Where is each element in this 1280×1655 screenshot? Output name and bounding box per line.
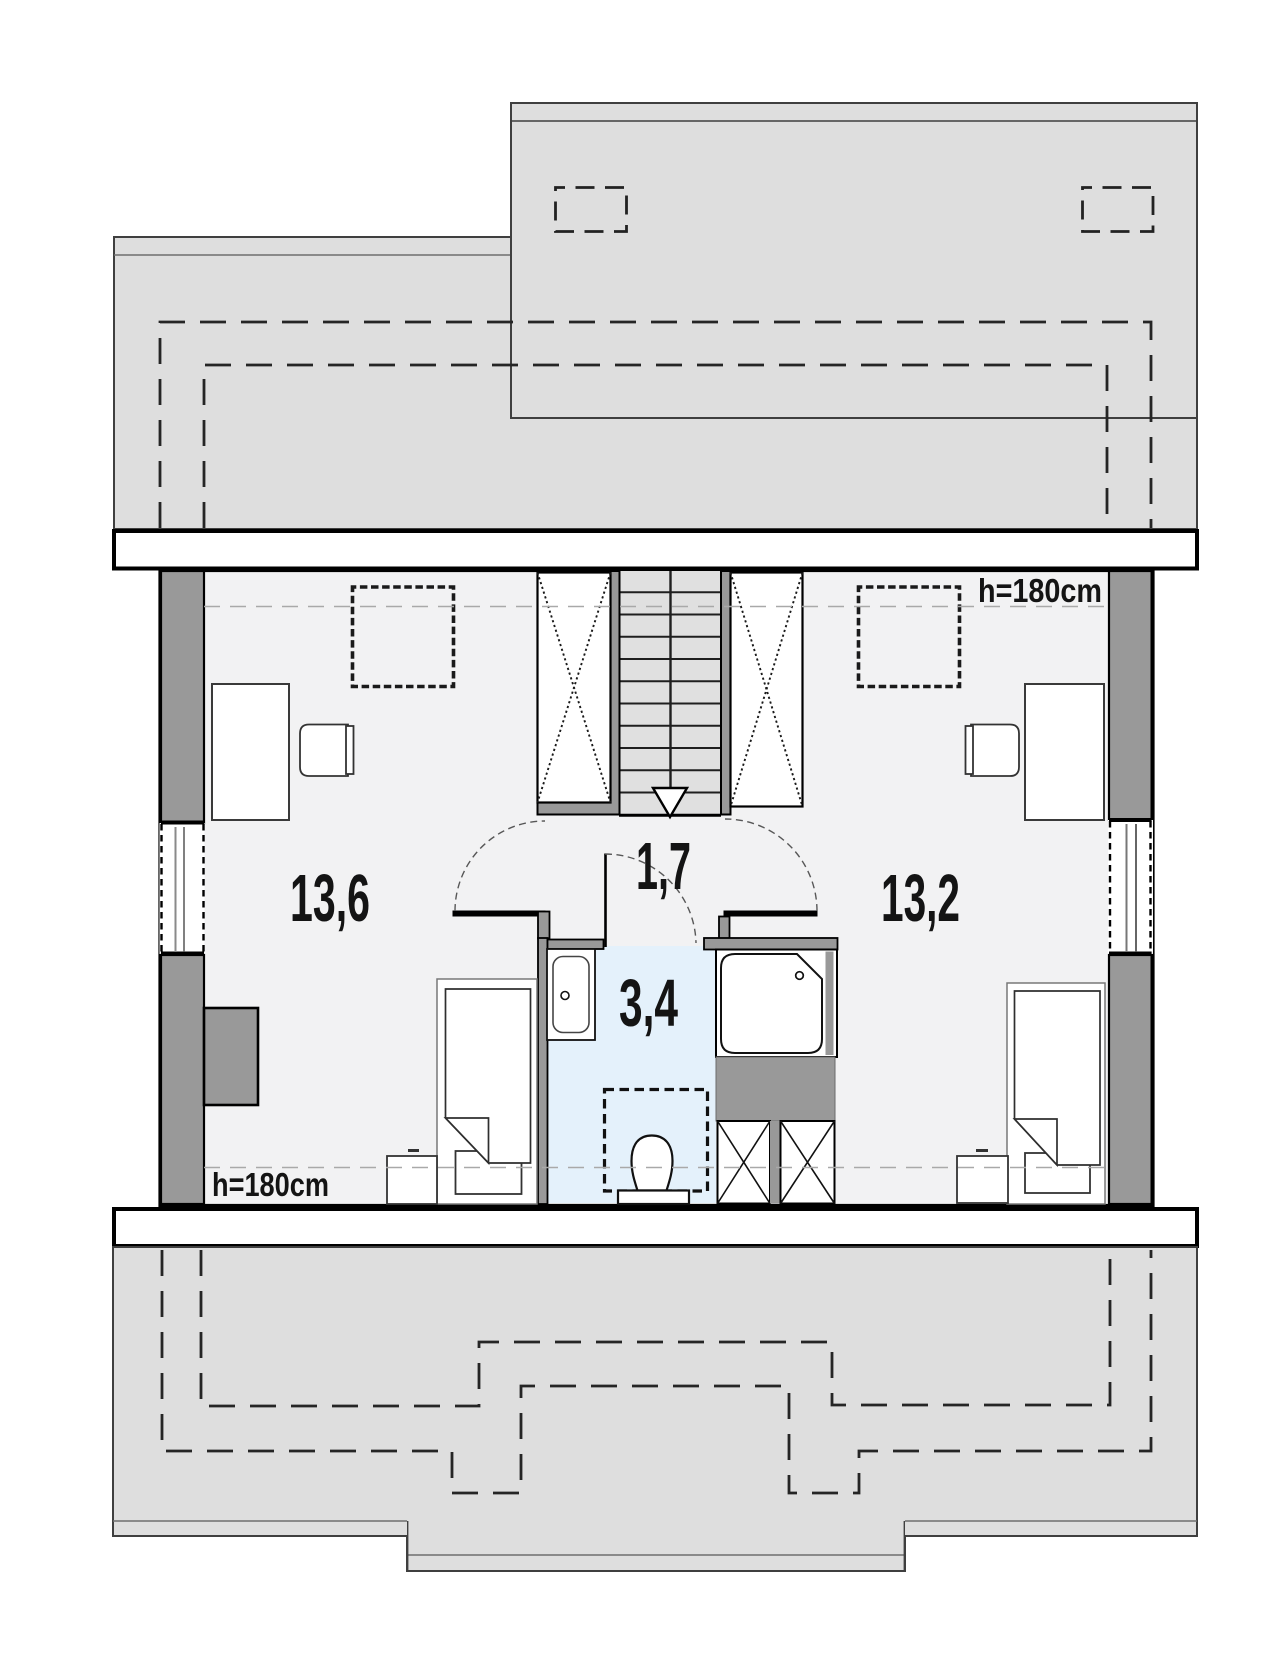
svg-text:1,7: 1,7 (636, 829, 691, 904)
svg-text:3,4: 3,4 (619, 966, 678, 1041)
svg-text:h=180cm: h=180cm (978, 572, 1102, 609)
svg-text:h=180cm: h=180cm (212, 1166, 329, 1203)
svg-text:13,2: 13,2 (881, 861, 960, 936)
svg-text:13,6: 13,6 (290, 861, 370, 936)
